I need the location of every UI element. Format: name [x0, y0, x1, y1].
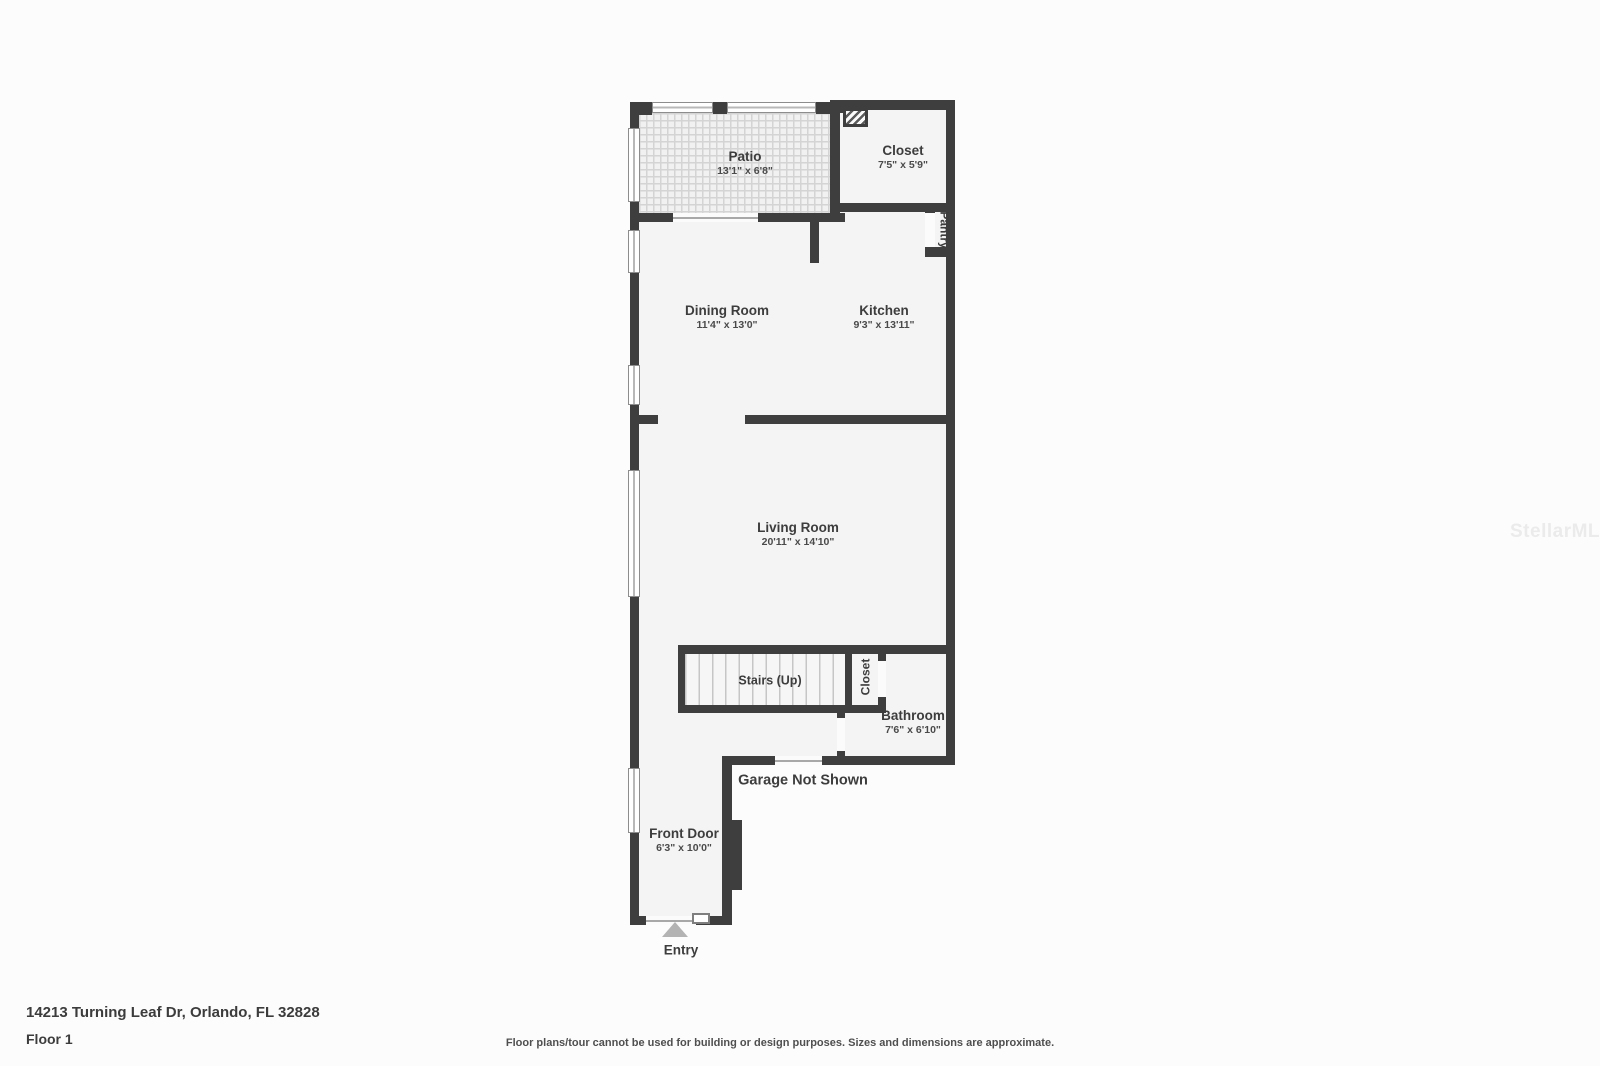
room-name: Bathroom: [881, 708, 945, 723]
room-name: Front Door: [649, 826, 719, 841]
wall-segment: [830, 106, 840, 213]
room-name: Closet: [859, 659, 873, 696]
window: [628, 128, 640, 202]
door-opening: [878, 661, 886, 697]
window: [628, 768, 640, 833]
door-opening: [925, 213, 935, 247]
annotation-text: Entry: [664, 943, 699, 958]
room-name: Pantry: [938, 211, 952, 248]
wall-segment: [946, 100, 955, 765]
window: [652, 102, 713, 113]
room-label-bathroom: Bathroom 7'6" x 6'10": [881, 708, 945, 738]
address-text: 14213 Turning Leaf Dr, Orlando, FL 32828: [26, 1004, 320, 1021]
garage-note-label: Garage Not Shown: [738, 774, 868, 789]
room-name: Patio: [717, 149, 773, 164]
sliding-door-opening: [673, 213, 758, 222]
room-name: Kitchen: [853, 303, 914, 318]
wall-segment: [810, 213, 819, 263]
floor-plan-page: Patio 13'1" x 6'8" Closet 7'5" x 5'9" Pa…: [0, 0, 1600, 1066]
room-label-closet-hall: Closet: [859, 659, 874, 696]
door-opening: [837, 713, 845, 756]
wall-segment: [678, 645, 955, 654]
room-dims: 13'1" x 6'8": [717, 164, 773, 179]
room-dims: 6'3" x 10'0": [649, 841, 719, 856]
wall-segment: [837, 713, 845, 718]
hatch-marker: [843, 108, 868, 127]
wall-segment: [713, 102, 727, 114]
room-name: Living Room: [757, 520, 839, 535]
wall-segment: [745, 415, 955, 424]
wall-segment: [722, 756, 955, 765]
door-icon: [692, 913, 710, 924]
room-label-closet-top: Closet 7'5" x 5'9": [878, 143, 928, 173]
room-label-patio: Patio 13'1" x 6'8": [717, 149, 773, 179]
room-dims: 20'11" x 14'10": [757, 535, 839, 550]
wall-segment: [678, 705, 886, 713]
room-label-pantry: Pantry: [937, 211, 952, 248]
annotation-text: Garage Not Shown: [738, 773, 868, 789]
entry-label: Entry: [664, 943, 699, 958]
room-label-stairs: Stairs (Up): [738, 674, 801, 689]
floor-label: Floor 1: [26, 1031, 73, 1047]
disclaimer-text: Floor plans/tour cannot be used for buil…: [506, 1037, 1054, 1049]
window: [628, 230, 640, 273]
room-dims: 11'4" x 13'0": [685, 318, 769, 333]
room-label-living: Living Room 20'11" x 14'10": [757, 520, 839, 550]
room-name: Closet: [878, 143, 928, 158]
room-name: Stairs (Up): [738, 674, 801, 688]
window: [727, 102, 816, 113]
window: [628, 365, 640, 405]
entry-arrow-icon: [662, 922, 688, 937]
room-label-front-door: Front Door 6'3" x 10'0": [649, 826, 719, 856]
room-dims: 7'5" x 5'9": [878, 158, 928, 173]
wall-segment: [630, 415, 658, 424]
watermark: StellarMLS: [1510, 521, 1600, 543]
wall-segment: [845, 645, 852, 712]
window: [628, 470, 640, 597]
room-name: Dining Room: [685, 303, 769, 318]
wall-segment: [732, 820, 742, 890]
room-dims: 7'6" x 6'10": [881, 723, 945, 738]
room-label-dining: Dining Room 11'4" x 13'0": [685, 303, 769, 333]
garage-door-opening: [775, 756, 822, 765]
room-label-kitchen: Kitchen 9'3" x 13'11": [853, 303, 914, 333]
room-dims: 9'3" x 13'11": [853, 318, 914, 333]
wall-segment: [678, 645, 685, 712]
wall-segment: [722, 756, 732, 925]
